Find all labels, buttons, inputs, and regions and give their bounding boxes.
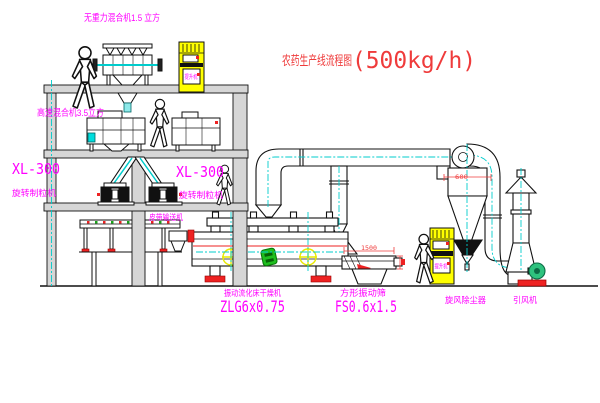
- page-title: 农药生产线流程图: [282, 53, 352, 68]
- elevator-bottom-label: 提升机: [435, 263, 448, 271]
- granulator-right-model-label: XL-300: [176, 163, 224, 181]
- granulator-right-name-label: 旋转制粒机: [179, 190, 224, 200]
- gravity-free-mixer-label: 无重力混合机1.5 立方: [84, 12, 160, 24]
- discharge-chute: [124, 103, 131, 112]
- column-right: [233, 93, 247, 286]
- exhaust-duct: [256, 149, 453, 217]
- belt-conveyor-label: 皮带输送机: [149, 212, 183, 222]
- person-middle-floor: [150, 99, 169, 146]
- granulator-right: [146, 183, 182, 205]
- floor-deck-middle: [44, 150, 248, 158]
- granulator-left-name-label: 旋转制粒机: [12, 188, 57, 198]
- fluid-bed-dryer: [188, 212, 348, 282]
- granulator-left: [97, 183, 134, 205]
- elevator-top-label: 提升机: [185, 73, 198, 81]
- cyclone-diameter-dim: 600: [455, 173, 468, 181]
- cad-flow-diagram: 提升机: [0, 0, 600, 403]
- diagram-canvas: 提升机: [0, 0, 600, 403]
- floor-deck-top: [44, 85, 248, 93]
- cyclone-label: 旋风除尘器: [445, 295, 486, 305]
- high-speed-mixer-label: 高速混合机3.5立方: [37, 107, 104, 119]
- granulator-left-model-label: XL-300: [12, 160, 60, 178]
- blender-unit: [172, 112, 220, 151]
- bucket-elevator-top: 提升机: [179, 42, 204, 92]
- screen-length-dim: 1500: [361, 244, 377, 252]
- column-middle: [132, 158, 145, 286]
- page-title-capacity: (500kg/h): [352, 48, 476, 74]
- person-top-floor: [72, 47, 96, 108]
- fan-base: [518, 280, 546, 286]
- fan-label: 引风机: [513, 295, 537, 305]
- dryer-model-label: ZLG6x0.75: [220, 297, 285, 316]
- dryer-motor: [260, 248, 277, 267]
- gravity-free-mixer: [93, 44, 162, 112]
- screen-model-label: FS0.6x1.5: [335, 297, 397, 316]
